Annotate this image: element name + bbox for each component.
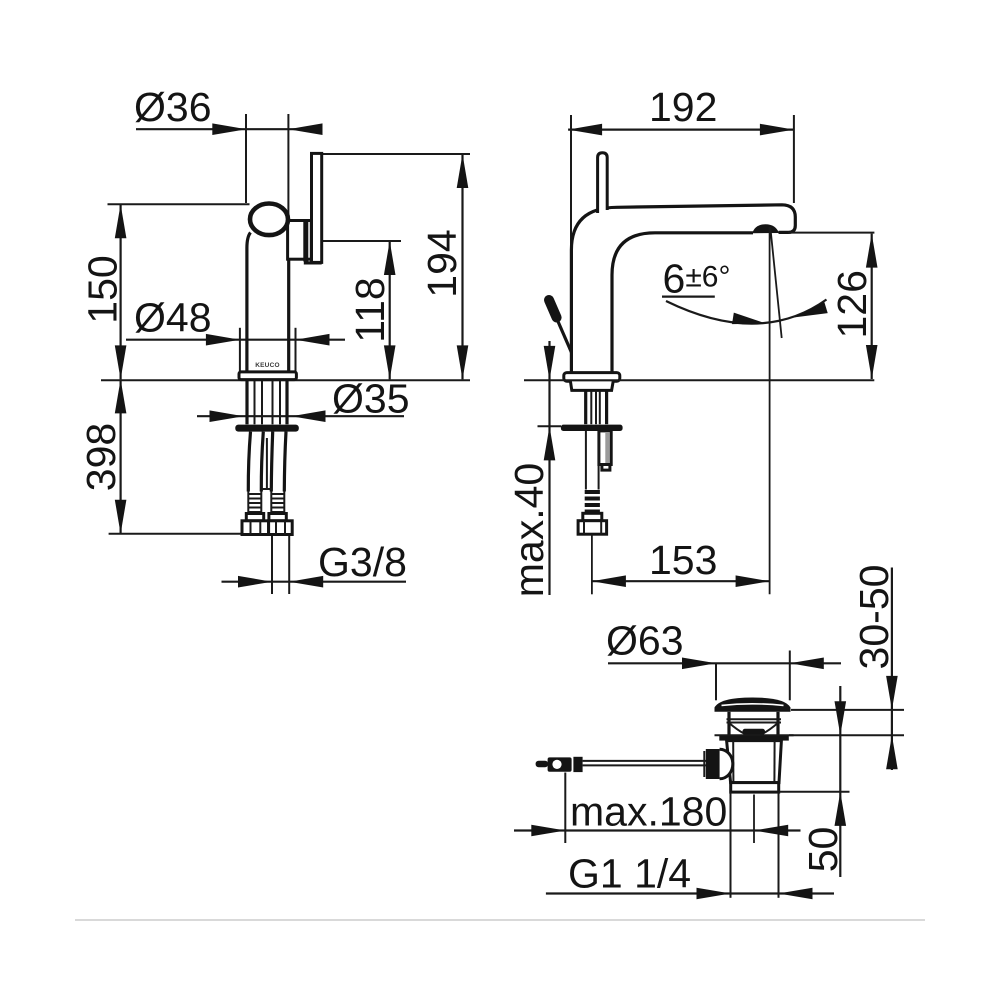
svg-text:max.40: max.40 [506, 463, 552, 597]
svg-text:153: 153 [649, 537, 717, 583]
svg-text:max.180: max.180 [570, 789, 727, 835]
svg-text:Ø63: Ø63 [606, 618, 684, 664]
svg-text:118: 118 [347, 277, 393, 342]
svg-text:G3/8: G3/8 [318, 539, 407, 585]
svg-text:G1 1/4: G1 1/4 [568, 851, 691, 897]
svg-text:398: 398 [78, 423, 124, 491]
svg-text:192: 192 [649, 84, 717, 130]
svg-text:KEUCO: KEUCO [255, 362, 279, 369]
svg-text:126: 126 [829, 270, 875, 338]
svg-text:30-50: 30-50 [851, 565, 897, 670]
svg-text:Ø35: Ø35 [332, 376, 410, 422]
svg-text:Ø48: Ø48 [134, 295, 212, 341]
svg-text:194: 194 [419, 229, 465, 297]
svg-text:50: 50 [800, 827, 846, 873]
svg-text:150: 150 [80, 255, 126, 323]
svg-text:Ø36: Ø36 [134, 84, 212, 130]
